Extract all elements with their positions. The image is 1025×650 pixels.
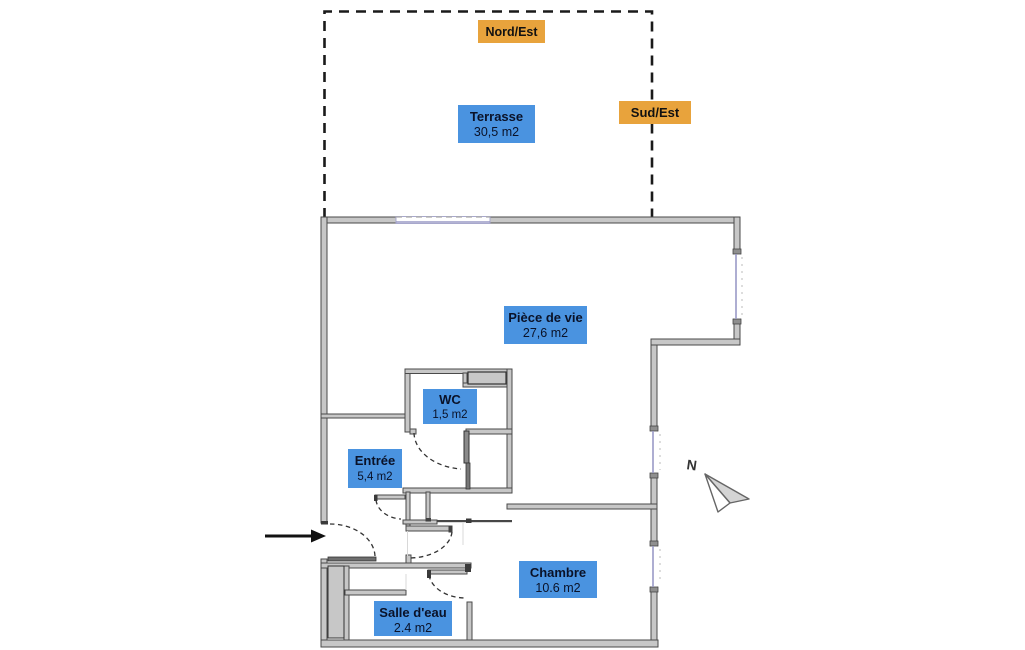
svg-text:30,5 m2: 30,5 m2 xyxy=(474,125,519,139)
svg-text:Entrée: Entrée xyxy=(355,453,395,468)
svg-text:Chambre: Chambre xyxy=(530,565,586,580)
svg-text:27,6 m2: 27,6 m2 xyxy=(523,326,568,340)
svg-text:Pièce de vie: Pièce de vie xyxy=(508,310,582,325)
svg-text:10.6 m2: 10.6 m2 xyxy=(535,581,580,595)
svg-text:1,5 m2: 1,5 m2 xyxy=(432,409,467,421)
svg-text:Sud/Est: Sud/Est xyxy=(631,105,680,120)
svg-text:Terrasse: Terrasse xyxy=(470,109,523,124)
svg-text:2.4 m2: 2.4 m2 xyxy=(394,621,432,635)
svg-text:WC: WC xyxy=(439,392,461,407)
svg-text:Nord/Est: Nord/Est xyxy=(485,25,538,39)
svg-text:5,4 m2: 5,4 m2 xyxy=(357,471,392,483)
svg-text:Salle d'eau: Salle d'eau xyxy=(379,605,446,620)
